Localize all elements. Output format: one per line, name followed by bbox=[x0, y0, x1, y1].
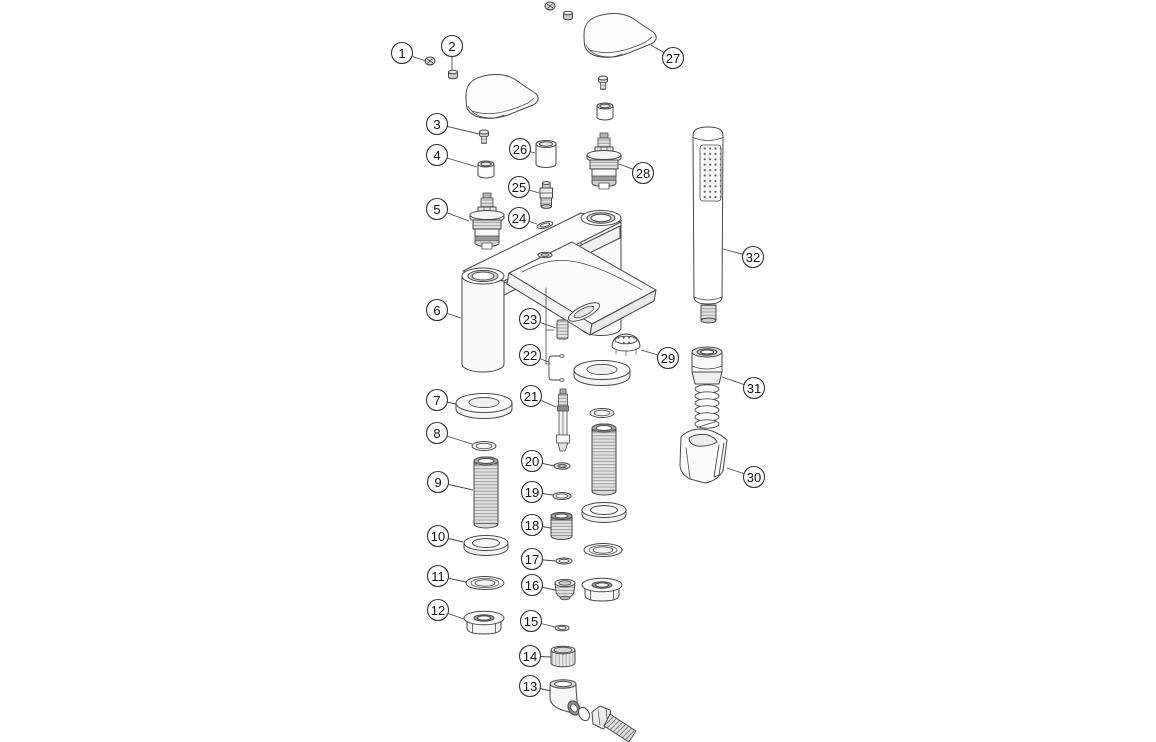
callout-8: 8 bbox=[427, 423, 473, 445]
callout-10: 10 bbox=[428, 526, 464, 547]
callout-number: 1 bbox=[398, 46, 405, 61]
callout-32: 32 bbox=[723, 247, 764, 268]
part-8-o-ring bbox=[472, 442, 496, 451]
callout-3: 3 bbox=[427, 114, 480, 135]
part-12-flanged-nut bbox=[464, 611, 504, 634]
callout-number: 4 bbox=[433, 148, 440, 163]
diagram-canvas: 1234567891011121314151617181920212223242… bbox=[0, 0, 1156, 742]
part-19-o-ring bbox=[553, 493, 571, 500]
callout-number: 13 bbox=[523, 679, 537, 694]
callout-number: 22 bbox=[523, 348, 537, 363]
part-4-cartridge-cap bbox=[478, 161, 494, 178]
callout-number: 9 bbox=[434, 475, 441, 490]
callout-9: 9 bbox=[428, 472, 474, 493]
callout-12: 12 bbox=[428, 600, 465, 621]
callout-2: 2 bbox=[442, 36, 463, 71]
callout-number: 27 bbox=[666, 51, 680, 66]
callout-6: 6 bbox=[427, 300, 462, 321]
part-13-elbow-hose-tail bbox=[550, 680, 636, 742]
part-2-screw-bush bbox=[449, 70, 458, 79]
callout-21: 21 bbox=[521, 386, 557, 408]
callout-29: 29 bbox=[641, 348, 679, 369]
callout-11: 11 bbox=[428, 566, 467, 587]
part-22-retainer-clip bbox=[549, 355, 564, 382]
callout-22: 22 bbox=[520, 345, 550, 366]
callout-27: 27 bbox=[651, 45, 684, 69]
part-11-flat-washer bbox=[466, 577, 504, 590]
part-25-non-return-valve bbox=[540, 182, 553, 209]
callout-number: 30 bbox=[747, 470, 761, 485]
part-28-cartridge bbox=[587, 133, 621, 189]
callout-number: 31 bbox=[747, 381, 761, 396]
part-14-cap-nut bbox=[551, 646, 575, 667]
callout-number: 11 bbox=[431, 569, 445, 584]
part-23-spring bbox=[557, 320, 568, 339]
callout-1: 1 bbox=[392, 43, 427, 64]
callout-28: 28 bbox=[619, 163, 654, 184]
callout-number: 19 bbox=[525, 485, 539, 500]
handle-screw-right bbox=[599, 76, 608, 90]
callout-16: 16 bbox=[522, 575, 556, 596]
callout-18: 18 bbox=[522, 515, 552, 536]
callout-number: 25 bbox=[512, 180, 526, 195]
callout-number: 28 bbox=[636, 166, 650, 181]
callout-number: 8 bbox=[433, 426, 440, 441]
callout-26: 26 bbox=[510, 139, 536, 160]
cartridge-cap-right bbox=[597, 103, 613, 120]
callout-number: 21 bbox=[524, 389, 538, 404]
callout-number: 32 bbox=[746, 250, 760, 265]
callout-25: 25 bbox=[509, 177, 540, 198]
callout-number: 10 bbox=[431, 529, 445, 544]
part-7-base-washer bbox=[456, 394, 512, 419]
callout-number: 17 bbox=[525, 552, 539, 567]
callout-31: 31 bbox=[722, 377, 765, 399]
callout-number: 15 bbox=[524, 614, 538, 629]
callout-17: 17 bbox=[522, 549, 557, 570]
callout-19: 19 bbox=[522, 482, 554, 503]
handle-left bbox=[466, 74, 538, 118]
callout-number: 16 bbox=[525, 578, 539, 593]
callout-number: 12 bbox=[431, 603, 445, 618]
callout-14: 14 bbox=[520, 646, 552, 667]
callout-15: 15 bbox=[521, 611, 556, 632]
callout-number: 20 bbox=[525, 454, 539, 469]
callout-number: 2 bbox=[448, 39, 455, 54]
callout-20: 20 bbox=[522, 451, 555, 472]
callout-30: 30 bbox=[727, 467, 765, 488]
callout-number: 6 bbox=[433, 303, 440, 318]
right-leg-fixing-stack bbox=[574, 361, 630, 602]
part-30-wall-bracket bbox=[680, 429, 727, 483]
callout-number: 24 bbox=[512, 211, 526, 226]
part-26-valve-sleeve bbox=[536, 141, 556, 168]
part-18-threaded-bush bbox=[551, 513, 572, 540]
callout-number: 7 bbox=[433, 393, 440, 408]
part-32-shower-handset bbox=[693, 127, 723, 323]
callout-number: 18 bbox=[525, 518, 539, 533]
part-17-o-ring bbox=[556, 558, 572, 564]
callout-number: 23 bbox=[523, 312, 537, 327]
part-5-cartridge bbox=[470, 193, 504, 249]
part-31-hose-connector bbox=[692, 347, 722, 428]
callout-number: 26 bbox=[513, 142, 527, 157]
callout-5: 5 bbox=[427, 199, 470, 222]
callout-number: 29 bbox=[661, 351, 675, 366]
callout-number: 3 bbox=[433, 117, 440, 132]
callout-23: 23 bbox=[520, 309, 557, 330]
callout-13: 13 bbox=[520, 676, 552, 697]
part-1-grub-screw bbox=[425, 57, 435, 65]
screw-bush-right bbox=[564, 11, 573, 20]
part-27-handle-right bbox=[584, 13, 656, 57]
callout-number: 5 bbox=[433, 202, 440, 217]
part-21-diverter-rod bbox=[557, 389, 570, 451]
part-10-rubber-washer bbox=[464, 536, 508, 556]
part-29-aerator bbox=[612, 334, 640, 356]
part-15-o-ring bbox=[555, 625, 569, 631]
callout-4: 4 bbox=[427, 145, 478, 168]
part-20-seal-ring bbox=[554, 463, 570, 469]
callout-7: 7 bbox=[427, 390, 457, 411]
callout-24: 24 bbox=[509, 208, 538, 229]
part-9-threaded-shank bbox=[474, 457, 498, 528]
grub-screw-right bbox=[545, 2, 555, 10]
part-16-blanking-plug bbox=[555, 579, 575, 599]
callout-number: 14 bbox=[523, 649, 537, 664]
part-3-handle-screw bbox=[480, 130, 489, 144]
